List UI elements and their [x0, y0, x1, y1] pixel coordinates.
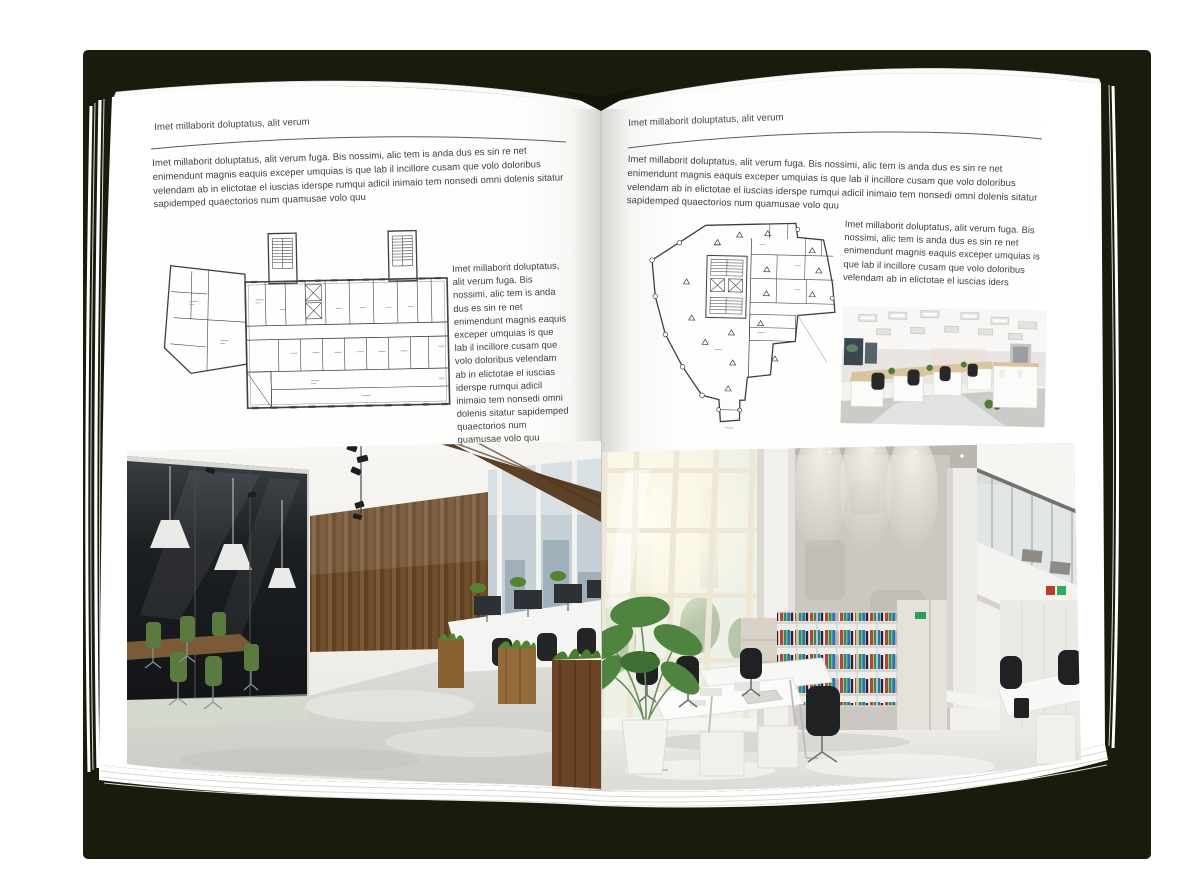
- magazine-mockup: Imet millaborit doluptatus, alit verum I…: [0, 0, 1200, 891]
- photo-right-atrium: [524, 402, 1082, 793]
- photo-left-office: [127, 441, 601, 791]
- right-page-intro-paragraph: Imet millaborit doluptatus, alit verum f…: [627, 153, 1048, 219]
- right-page-caption-paragraph: Imet millaborit doluptatus, alit verum f…: [843, 218, 1053, 291]
- left-page-caption-column: Imet millaborit doluptatus, alit verum f…: [452, 259, 571, 447]
- photo-small-office: [841, 306, 1047, 427]
